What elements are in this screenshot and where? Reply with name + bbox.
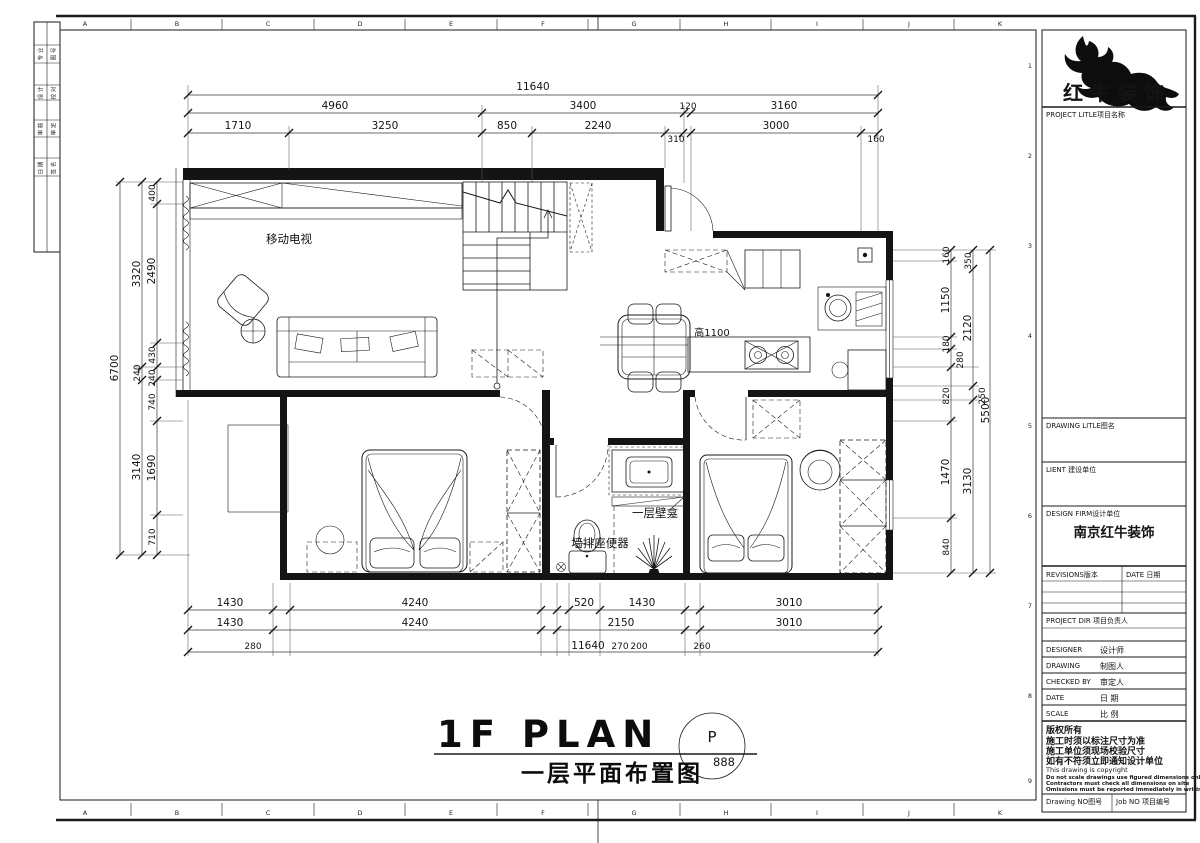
grid-letter: D <box>357 809 362 817</box>
drawing-title-label: DRAWING LITLE图名 <box>1046 421 1115 430</box>
bedroom2 <box>695 397 886 573</box>
wardrobe1 <box>507 450 540 572</box>
grid-number: 8 <box>1028 692 1032 700</box>
tv-cabinet <box>190 183 462 219</box>
dim: 820 <box>942 387 952 404</box>
grid-numbers-right: 1 2 3 4 5 6 7 8 9 <box>1028 62 1032 785</box>
grid-letter: G <box>631 809 636 817</box>
entry-door <box>665 186 713 231</box>
dim: 3400 <box>570 100 597 112</box>
door-swing <box>695 397 746 440</box>
design-firm-value: 南京红牛装饰 <box>1074 524 1155 541</box>
stove <box>745 341 798 369</box>
grid-letter: E <box>449 20 453 28</box>
dim: 400 <box>148 184 158 201</box>
grid-letter: B <box>175 20 179 28</box>
grid-letter: A <box>83 809 88 817</box>
plant <box>636 535 672 575</box>
project-dir-label: PROJECT DIR 项目负责人 <box>1046 616 1128 625</box>
nightstand-right <box>470 542 503 572</box>
door-swing <box>556 445 608 497</box>
dim: 350 <box>964 252 974 269</box>
grid-letter: C <box>266 809 271 817</box>
dim: 180 <box>942 335 952 352</box>
copyright-line: 施工单位须现场校验尺寸 <box>1046 745 1145 757</box>
rev-date-label: DATE 日期 <box>1126 571 1160 579</box>
scale-zh: 比 例 <box>1100 709 1119 719</box>
copyright-line: This drawing is copyright <box>1045 766 1128 774</box>
dim: 2120 <box>962 315 974 342</box>
dim: 200 <box>630 642 647 652</box>
plan-title-zh: 一层平面布置图 <box>521 760 703 787</box>
staircase <box>463 182 592 389</box>
dim: 1430 <box>217 617 244 629</box>
label-bar-height: 高1100 <box>694 326 729 339</box>
strip-cell: 图 号 <box>50 47 58 60</box>
dim: 280 <box>244 642 261 652</box>
grid-letter: F <box>541 20 545 28</box>
draftsman-label: DRAWING <box>1046 662 1080 670</box>
bedroom1 <box>228 397 545 572</box>
dim: 3250 <box>372 120 399 132</box>
dim: 260 <box>693 642 710 652</box>
dim: 1690 <box>146 455 158 482</box>
dim: 1710 <box>225 120 252 132</box>
grid-letter: J <box>907 20 910 28</box>
date-label: DATE <box>1046 694 1064 702</box>
grid-letters-top: A B C D E F G H I J K <box>83 19 1003 30</box>
grid-number: 3 <box>1028 242 1032 250</box>
dim: 240 <box>148 369 158 386</box>
dim: 310 <box>667 135 684 145</box>
logo-text: 红牛装饰 <box>1063 81 1171 105</box>
plan-title-en: 1F PLAN <box>437 713 660 756</box>
bed1 <box>362 450 467 572</box>
client-label: LIENT 建设单位 <box>1046 465 1096 474</box>
grid-number: 6 <box>1028 512 1032 520</box>
armchair <box>215 272 271 328</box>
dim: 430 <box>148 346 158 363</box>
floor-drain <box>557 563 566 572</box>
checked-zh: 审定人 <box>1100 677 1124 687</box>
dim: 6700 <box>109 355 121 382</box>
copyright-line: Omissions must be reported immediately i… <box>1046 787 1200 793</box>
dim: 840 <box>942 538 952 555</box>
grid-letter: I <box>816 20 818 28</box>
title-block: 红牛装饰 PROJECT LITLE项目名称 DRAWING LITLE图名 L… <box>1042 30 1200 812</box>
dim: 740 <box>148 393 158 410</box>
dim: 520 <box>574 597 594 609</box>
strip-cell: 校 对 <box>50 86 58 99</box>
cad-sheet: A B C D E F G H I J K A B C D E F G H I … <box>0 0 1200 843</box>
grid-letter: F <box>541 809 545 817</box>
copyright-line: 施工时须以标注尺寸为准 <box>1046 735 1145 747</box>
dim: 4240 <box>402 617 429 629</box>
grid-letter: H <box>724 809 729 817</box>
dimensions: 11640 4960 3400 120 3160 1710 3250 850 2… <box>109 81 996 656</box>
dim: 11640 <box>516 81 549 93</box>
dining-set <box>618 304 690 392</box>
grid-number: 4 <box>1028 332 1032 340</box>
floor-plan: 移动电视 <box>176 168 893 580</box>
copyright-block: 版权所有 施工时须以标注尺寸为准 施工单位须现场校验尺寸 如有不符须立即通知设计… <box>1045 724 1200 793</box>
grid-letters-bottom: A B C D E F G H I J K <box>83 803 1003 817</box>
grid-letter: B <box>175 809 179 817</box>
project-title-label: PROJECT LITLE项目名称 <box>1046 110 1125 119</box>
strip-cell: 审 核 <box>37 122 45 135</box>
dim: 3160 <box>771 100 798 112</box>
signature-strip: 专 业 图 号 设 计 校 对 审 核 审 定 日 期 签 名 <box>34 22 60 252</box>
grid-letter: H <box>724 20 729 28</box>
designer-label: DESIGNER <box>1046 646 1082 654</box>
dim: 160 <box>942 246 952 263</box>
overhead-cabinet-living <box>472 350 543 377</box>
dim: 11640 <box>571 640 604 652</box>
dim: 5500 <box>980 397 992 424</box>
bed2 <box>700 455 792 573</box>
dim: 2150 <box>608 617 635 629</box>
dim: 1430 <box>629 597 656 609</box>
label-niche: 一层壁龛 <box>632 506 678 520</box>
grid-letter: D <box>357 20 362 28</box>
sofa <box>277 317 437 377</box>
dim: 4960 <box>322 100 349 112</box>
overhead-cabinet-bed2 <box>753 400 800 438</box>
dim: 120 <box>679 102 696 112</box>
checked-label: CHECKED BY <box>1046 678 1092 686</box>
dim: 3010 <box>776 597 803 609</box>
design-firm-label: DESIGN FIRM设计单位 <box>1046 509 1120 518</box>
dim: 3000 <box>763 120 790 132</box>
grid-number: 2 <box>1028 152 1032 160</box>
strip-cell: 日 期 <box>38 161 45 174</box>
dim: 240 <box>133 364 143 381</box>
dim: 3010 <box>776 617 803 629</box>
door-swing <box>500 397 545 440</box>
copyright-line: 版权所有 <box>1045 724 1082 736</box>
label-mobile-tv: 移动电视 <box>266 232 312 246</box>
ac-platform <box>228 425 288 512</box>
dim: 270 <box>611 642 628 652</box>
side-table <box>241 319 265 343</box>
dim: 2490 <box>146 258 158 285</box>
grid-letter: C <box>266 20 271 28</box>
dim: 1470 <box>940 459 952 486</box>
dim: 4240 <box>402 597 429 609</box>
dim: 850 <box>497 120 517 132</box>
strip-cell: 审 定 <box>50 122 58 135</box>
grid-letter: I <box>816 809 818 817</box>
grid-letter: A <box>83 20 88 28</box>
date-zh: 日 期 <box>1100 694 1119 703</box>
dim: 160 <box>867 135 884 145</box>
tub-chair <box>800 450 840 490</box>
grid-letter: K <box>998 809 1003 817</box>
label-toilet: 墙排座便器 <box>571 536 629 550</box>
niche-washbasin <box>609 447 687 508</box>
grid-number: 9 <box>1028 777 1032 785</box>
scale-label: SCALE <box>1046 710 1068 718</box>
dim: 280 <box>956 351 966 368</box>
strip-cell: 设 计 <box>37 86 45 99</box>
grid-number: 5 <box>1028 422 1032 430</box>
window-coils <box>184 196 287 566</box>
designer-zh: 设计师 <box>1100 645 1124 655</box>
grid-letter: E <box>449 809 453 817</box>
grid-number: 1 <box>1028 62 1032 70</box>
plan-title: 1F PLAN P 888 一层平面布置图 <box>434 713 757 787</box>
drawing-no-label: Drawing NO图号 <box>1046 798 1102 806</box>
job-no-label: Job NO 项目编号 <box>1115 797 1170 806</box>
dim: 3140 <box>131 454 143 481</box>
dim: 2240 <box>585 120 612 132</box>
dim: 710 <box>148 528 158 545</box>
wardrobe2 <box>840 440 886 573</box>
dim: 3320 <box>131 261 143 288</box>
redniu-logo: 红牛装饰 <box>1063 36 1179 111</box>
revisions-label: REVISIONS版本 <box>1046 570 1098 579</box>
dim: 1150 <box>940 287 952 314</box>
bubble-letter: P <box>707 728 716 746</box>
walls <box>176 168 893 580</box>
nightstand-left <box>307 526 357 572</box>
strip-cell: 专 业 <box>37 47 45 60</box>
draftsman-zh: 制图人 <box>1100 661 1124 671</box>
dim: 1430 <box>217 597 244 609</box>
grid-letter: J <box>907 809 910 817</box>
floorplan-drawing: A B C D E F G H I J K A B C D E F G H I … <box>0 0 1200 843</box>
grid-letter: G <box>631 20 636 28</box>
bubble-number: 888 <box>713 755 735 769</box>
strip-cell: 签 名 <box>50 162 58 175</box>
grid-number: 7 <box>1028 602 1032 610</box>
grid-letter: K <box>998 20 1003 28</box>
dim: 3130 <box>962 468 974 495</box>
desk-right <box>832 350 886 390</box>
